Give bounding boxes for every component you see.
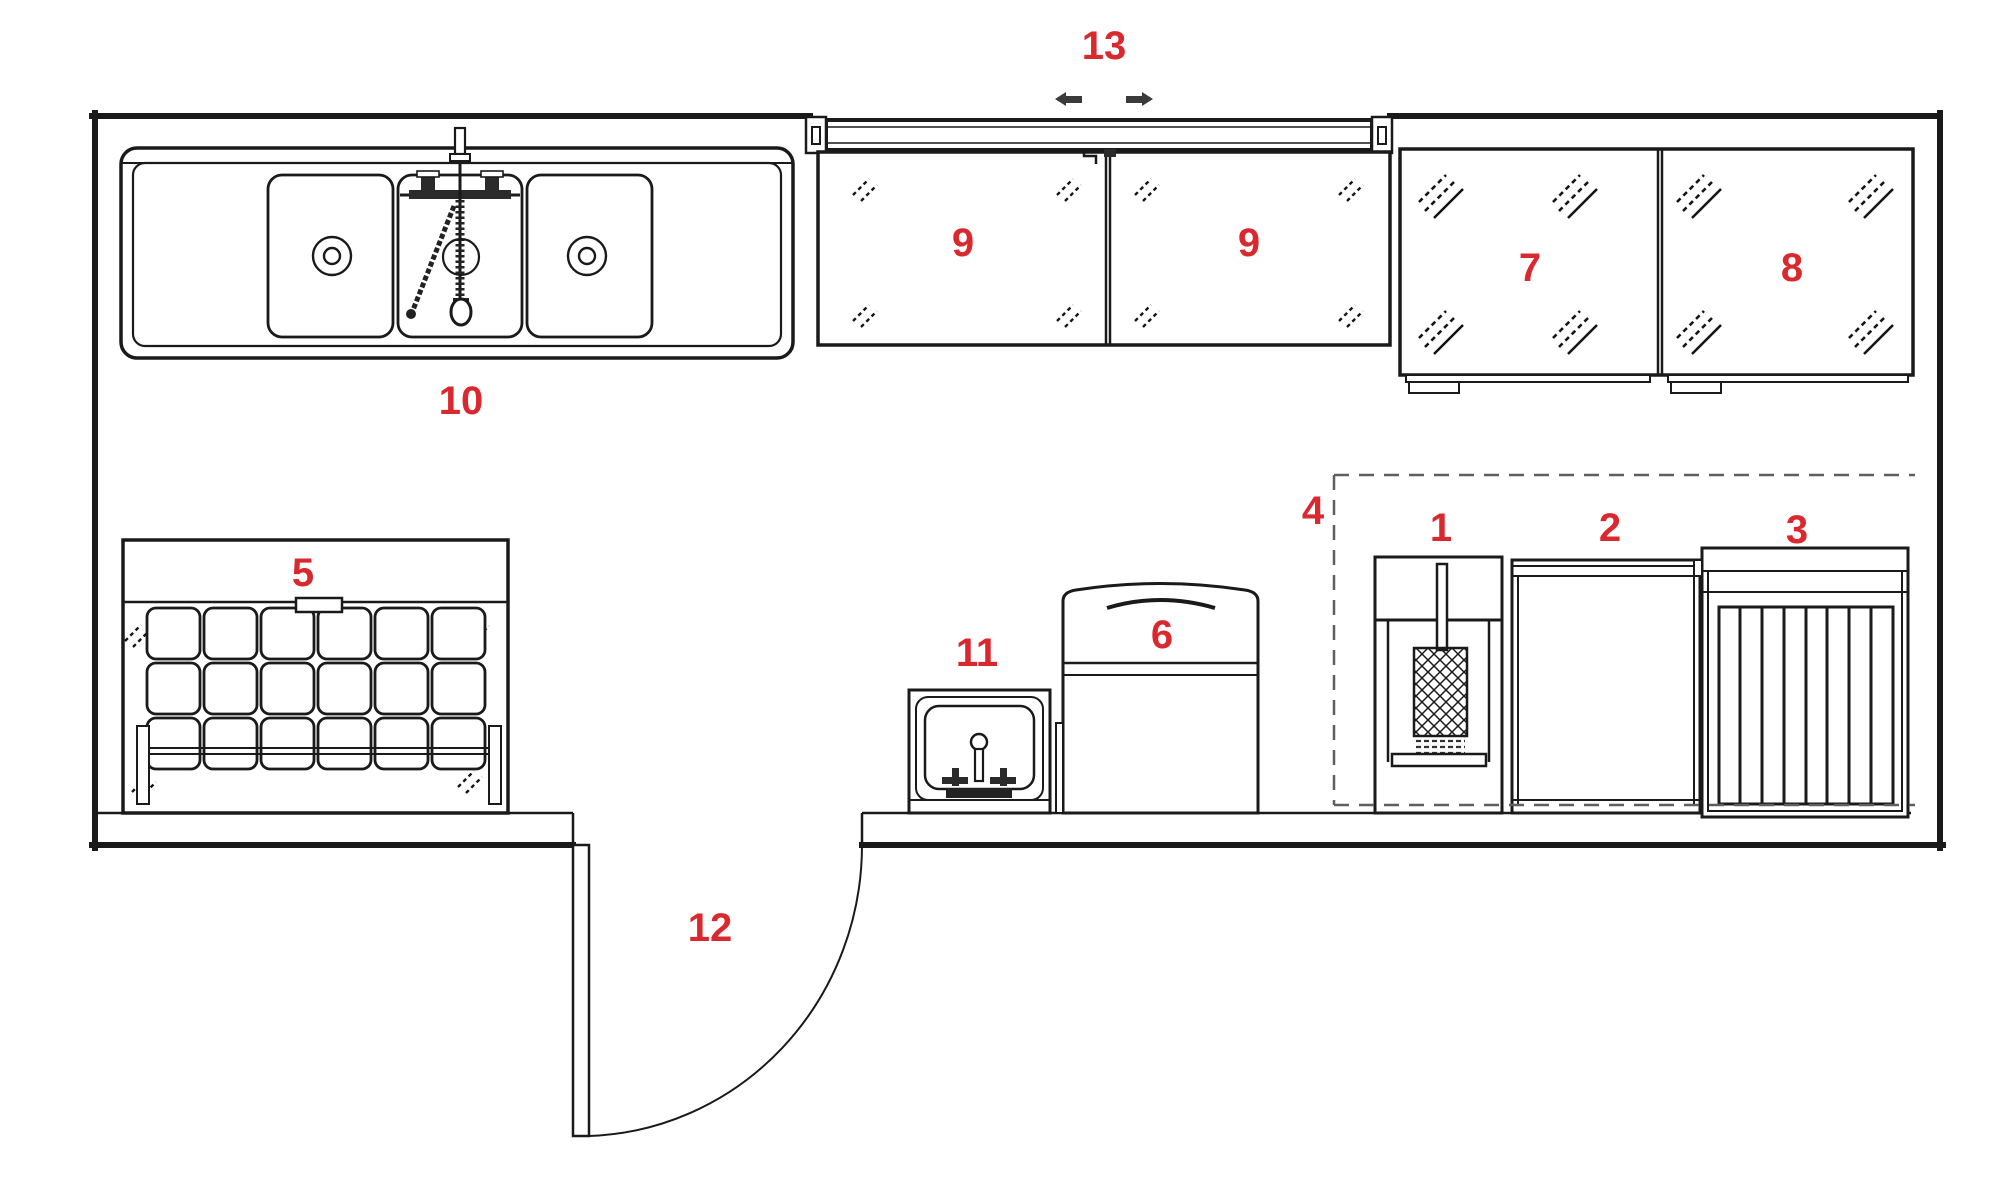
equipment-2-cabinet [1512, 560, 1700, 813]
glass-cabinets-7-8 [1400, 149, 1913, 393]
cabinet-7-handle [1406, 375, 1650, 382]
sliding-door [806, 92, 1392, 153]
label-8: 8 [1781, 246, 1803, 290]
label-9-left: 9 [952, 221, 974, 265]
door-swing-arc [589, 845, 862, 1136]
cabinet-8-handle [1668, 375, 1908, 382]
sink-basin-right [527, 175, 652, 337]
lid-handle [296, 598, 342, 612]
prep-pan-station [123, 540, 508, 813]
door-leaf [573, 845, 589, 1136]
label-4: 4 [1302, 489, 1325, 533]
floor-plan-canvas: 1 2 3 4 5 6 7 8 9 9 10 11 12 13 [0, 0, 2000, 1188]
label-11: 11 [956, 631, 998, 675]
label-13: 13 [1082, 24, 1127, 68]
floor-plan: 1 2 3 4 5 6 7 8 9 9 10 11 12 13 [0, 0, 2000, 1188]
blender-shaft [1437, 564, 1447, 650]
blender-basket [1414, 648, 1467, 736]
label-10: 10 [439, 379, 484, 423]
entry-door [573, 845, 862, 1136]
label-7: 7 [1519, 246, 1541, 290]
label-5: 5 [292, 551, 314, 595]
slide-left-arrow-icon [1055, 92, 1082, 106]
equipment-1-blender [1375, 557, 1502, 813]
hand-sink [909, 690, 1050, 813]
label-6: 6 [1151, 613, 1173, 657]
label-1: 1 [1430, 506, 1452, 550]
equipment-3-slatted-unit [1694, 548, 1908, 817]
label-3: 3 [1786, 508, 1808, 552]
label-12: 12 [688, 906, 733, 950]
slide-right-arrow-icon [1126, 92, 1153, 106]
sink-basin-left [268, 175, 393, 337]
glass-wall-cabinets-9 [818, 149, 1390, 345]
label-2: 2 [1599, 506, 1621, 550]
label-9-right: 9 [1238, 221, 1260, 265]
three-compartment-sink [121, 128, 793, 358]
